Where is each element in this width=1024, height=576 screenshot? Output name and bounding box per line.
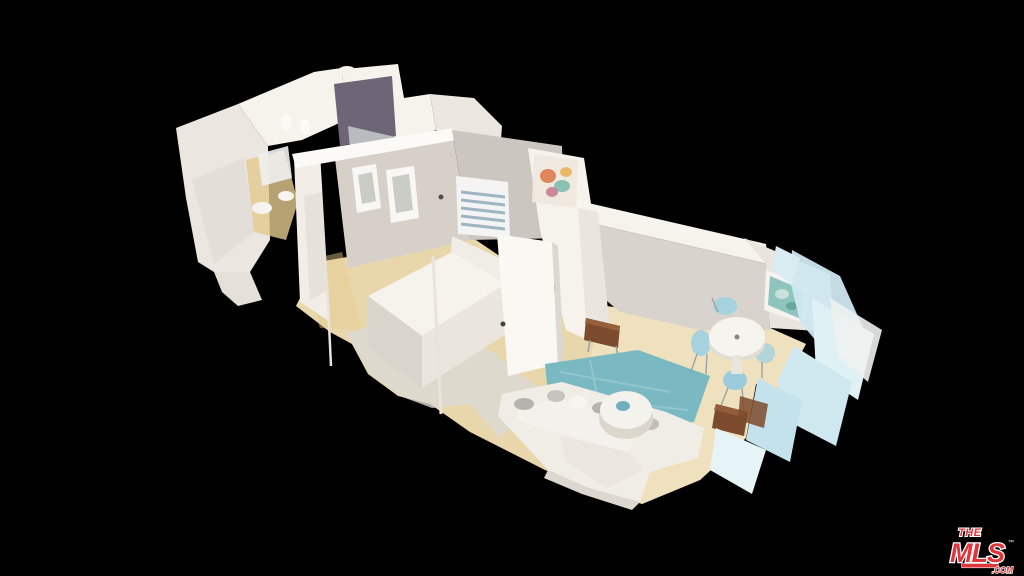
wall-sconce bbox=[281, 114, 291, 130]
teal-artwork-highlight bbox=[775, 289, 789, 299]
bathroom-sink bbox=[278, 191, 294, 201]
door-handle bbox=[501, 322, 506, 327]
sofa-pillow bbox=[569, 396, 587, 408]
dining-chair bbox=[713, 297, 737, 315]
bathroom-sink bbox=[252, 202, 272, 214]
dollhouse-3d-view bbox=[0, 0, 1024, 576]
abstract-painting-orange bbox=[540, 169, 556, 183]
abstract-painting-yellow bbox=[560, 167, 572, 177]
logo-com-text: .COM bbox=[992, 566, 1013, 574]
themls-logo: THE MLS ™ .COM bbox=[944, 522, 1020, 574]
dining-chair bbox=[691, 330, 711, 356]
sofa-pillow bbox=[514, 398, 534, 410]
abstract-painting-pink bbox=[546, 187, 558, 197]
wall-top-vent bbox=[338, 66, 356, 76]
table-pedestal bbox=[731, 355, 743, 374]
sofa-pillow bbox=[547, 390, 565, 402]
ottoman-teal-tray bbox=[616, 401, 630, 411]
bedroom-sconce bbox=[439, 195, 444, 200]
logo-trademark: ™ bbox=[1008, 539, 1014, 546]
abstract-painting-frame bbox=[532, 154, 578, 208]
screenshot-canvas: THE MLS ™ .COM bbox=[0, 0, 1024, 576]
wall-sconce bbox=[300, 119, 310, 135]
table-centerpiece bbox=[735, 335, 740, 340]
